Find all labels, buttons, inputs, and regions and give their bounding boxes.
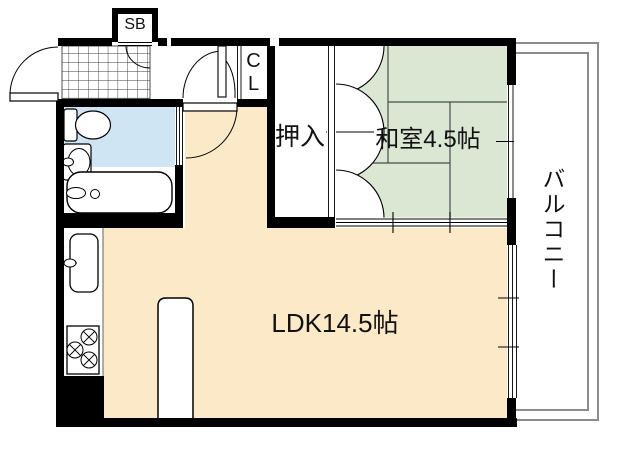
closet-cl-label-line2: L <box>240 73 267 96</box>
bathtub <box>67 172 173 213</box>
entrance-door <box>10 47 58 101</box>
stove <box>67 326 99 374</box>
hallway-door <box>183 46 235 98</box>
washitsu-label: 和室4.5帖 <box>345 119 511 154</box>
ldk-label: LDK14.5帖 <box>252 303 418 340</box>
bathroom-door <box>175 107 184 165</box>
closet-cl-label: CL <box>240 50 267 96</box>
shoe-box-label: SB <box>112 16 158 34</box>
toilet <box>64 109 111 141</box>
balcony-label: バルコニー <box>541 167 569 312</box>
kitchen-island <box>158 298 193 420</box>
closet-cl-label-line1: C <box>240 50 267 73</box>
genkan-tiles <box>62 46 150 99</box>
ldk-floor-notch <box>185 107 267 228</box>
entrance-door-arc <box>10 47 58 95</box>
floorplan-drawing <box>0 0 623 456</box>
floorplan: SB CL 押入 和室4.5帖 LDK14.5帖 バルコニー <box>0 0 623 456</box>
oshiire-label: 押入 <box>268 117 332 153</box>
